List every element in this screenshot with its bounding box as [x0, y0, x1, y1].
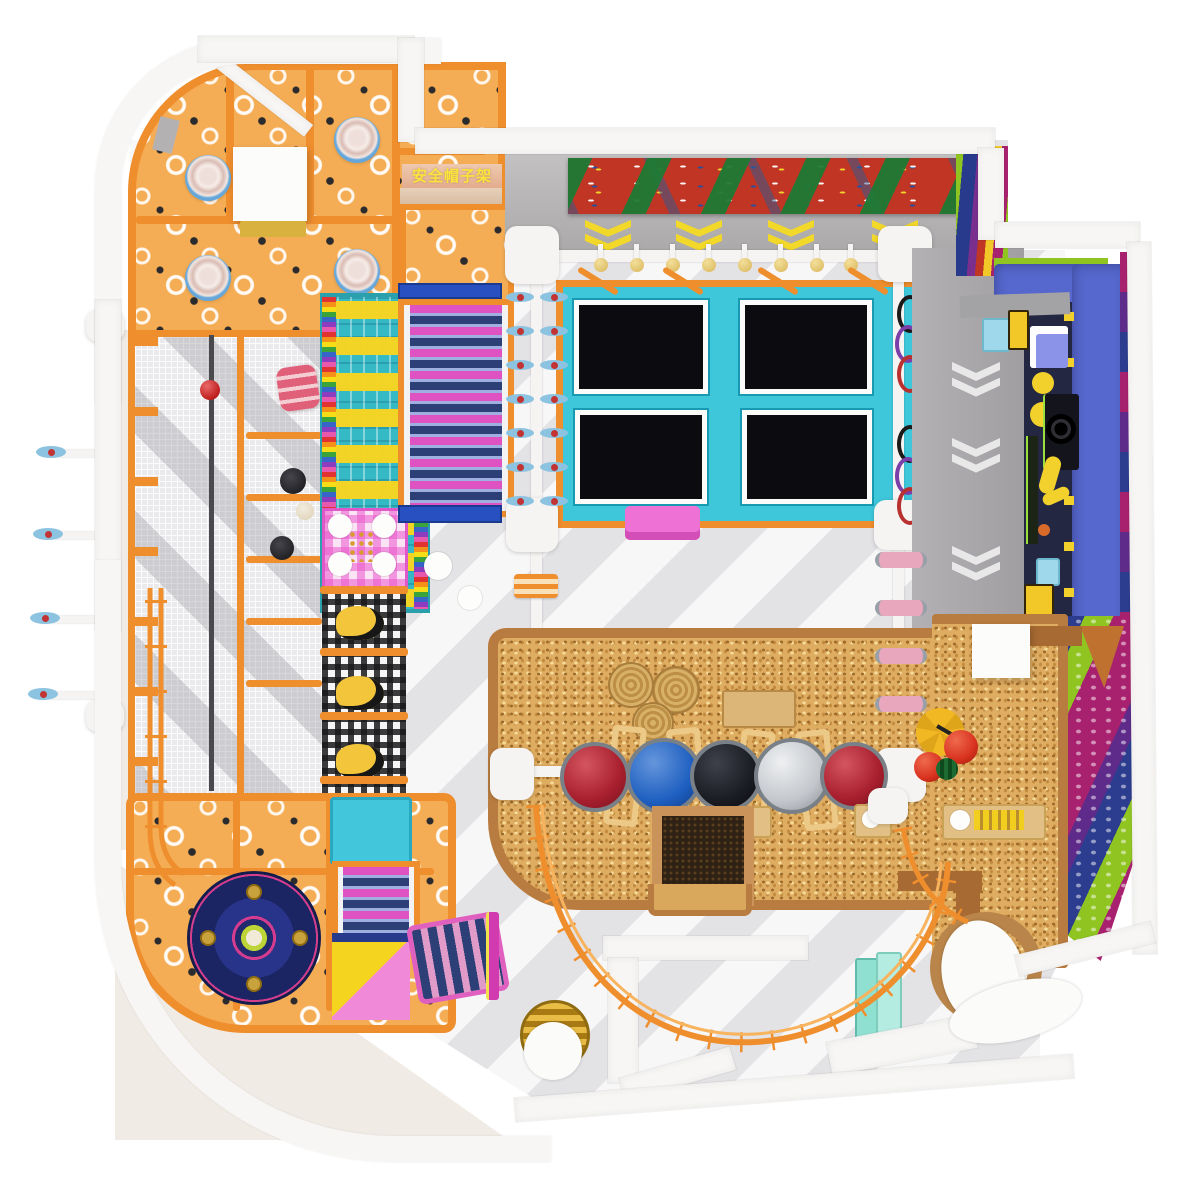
- wooden-toy-cart: [722, 690, 796, 728]
- screen-box: [1030, 326, 1068, 368]
- xylophone-disc: [950, 810, 970, 830]
- punch-bag: [702, 258, 716, 272]
- white-cube: [972, 624, 1030, 678]
- disc-swing: [540, 292, 568, 302]
- balance-ball: [754, 738, 830, 814]
- figurine: [1038, 524, 1050, 536]
- punch-bag: [810, 258, 824, 272]
- trampoline-bed: [740, 300, 872, 394]
- wall-top-jog: [398, 38, 424, 142]
- disc-swing: [540, 462, 568, 472]
- game-panel: [1026, 436, 1038, 544]
- drum: [280, 468, 306, 494]
- mesh-rung: [246, 432, 322, 439]
- monkey-sign: [1008, 310, 1029, 350]
- cup: [1036, 558, 1060, 586]
- podium-leg: [608, 958, 638, 1083]
- slide-bottom-bar: [398, 505, 502, 523]
- xylophone-slats: [974, 810, 1024, 830]
- climbing-wall: [568, 158, 968, 214]
- wall-top-main: [415, 128, 995, 154]
- disc-swing: [540, 428, 568, 438]
- trampoline-bed: [574, 300, 708, 394]
- punch-bag: [774, 258, 788, 272]
- trampoline-bed: [742, 410, 872, 504]
- disc-swing: [506, 428, 534, 438]
- beam-roller: [875, 552, 927, 568]
- disc-swing: [36, 446, 66, 458]
- mat-circle: [372, 514, 396, 538]
- playground-floorplan: 安全帽子架: [0, 0, 1200, 1200]
- balance-ball: [560, 742, 630, 812]
- beam-roller: [875, 600, 927, 616]
- disc-swing: [540, 496, 568, 506]
- disc-swing: [506, 394, 534, 404]
- disc-swing: [540, 326, 568, 336]
- wall-top-left-arc: [95, 38, 441, 404]
- disc-swing: [506, 462, 534, 472]
- trampoline-bed: [575, 410, 707, 504]
- disc-swing: [30, 612, 60, 624]
- disc-swing: [506, 360, 534, 370]
- soft-ball: [296, 502, 314, 520]
- gold-dot-patch: [348, 530, 376, 562]
- punch-bag: [630, 258, 644, 272]
- beam-pad: [505, 226, 559, 284]
- woven-disc: [608, 662, 654, 708]
- wall-top: [198, 36, 414, 62]
- disc-swing: [540, 360, 568, 370]
- mat-circle: [328, 514, 352, 538]
- disc-swing: [506, 292, 534, 302]
- disc-swing: [506, 326, 534, 336]
- beam-roller: [875, 696, 927, 712]
- balance-ball: [690, 740, 762, 812]
- beam-pad: [868, 788, 908, 824]
- punch-bag: [594, 258, 608, 272]
- cooler-box: [982, 318, 1010, 352]
- drum: [270, 536, 294, 560]
- beam-pad: [506, 498, 558, 552]
- beam-roller: [875, 648, 927, 664]
- mesh-rung: [246, 494, 322, 501]
- dig-pit-step: [648, 884, 752, 916]
- stool-yellow: [1032, 372, 1054, 394]
- wall-right: [1127, 242, 1157, 954]
- wall-top-right-step: [995, 222, 1140, 248]
- punch-bag: [738, 258, 752, 272]
- landing-mat: [625, 506, 700, 540]
- mint-shelf: [876, 952, 902, 1036]
- watermelon-toy: [936, 758, 958, 780]
- turntable-disc: [1046, 414, 1076, 444]
- disc-swing: [28, 688, 58, 700]
- disc-swing: [540, 394, 568, 404]
- disc-swing: [506, 496, 534, 506]
- disc-swing: [33, 528, 63, 540]
- podium-bar: [603, 936, 808, 960]
- ninja-top-beam: [528, 250, 928, 262]
